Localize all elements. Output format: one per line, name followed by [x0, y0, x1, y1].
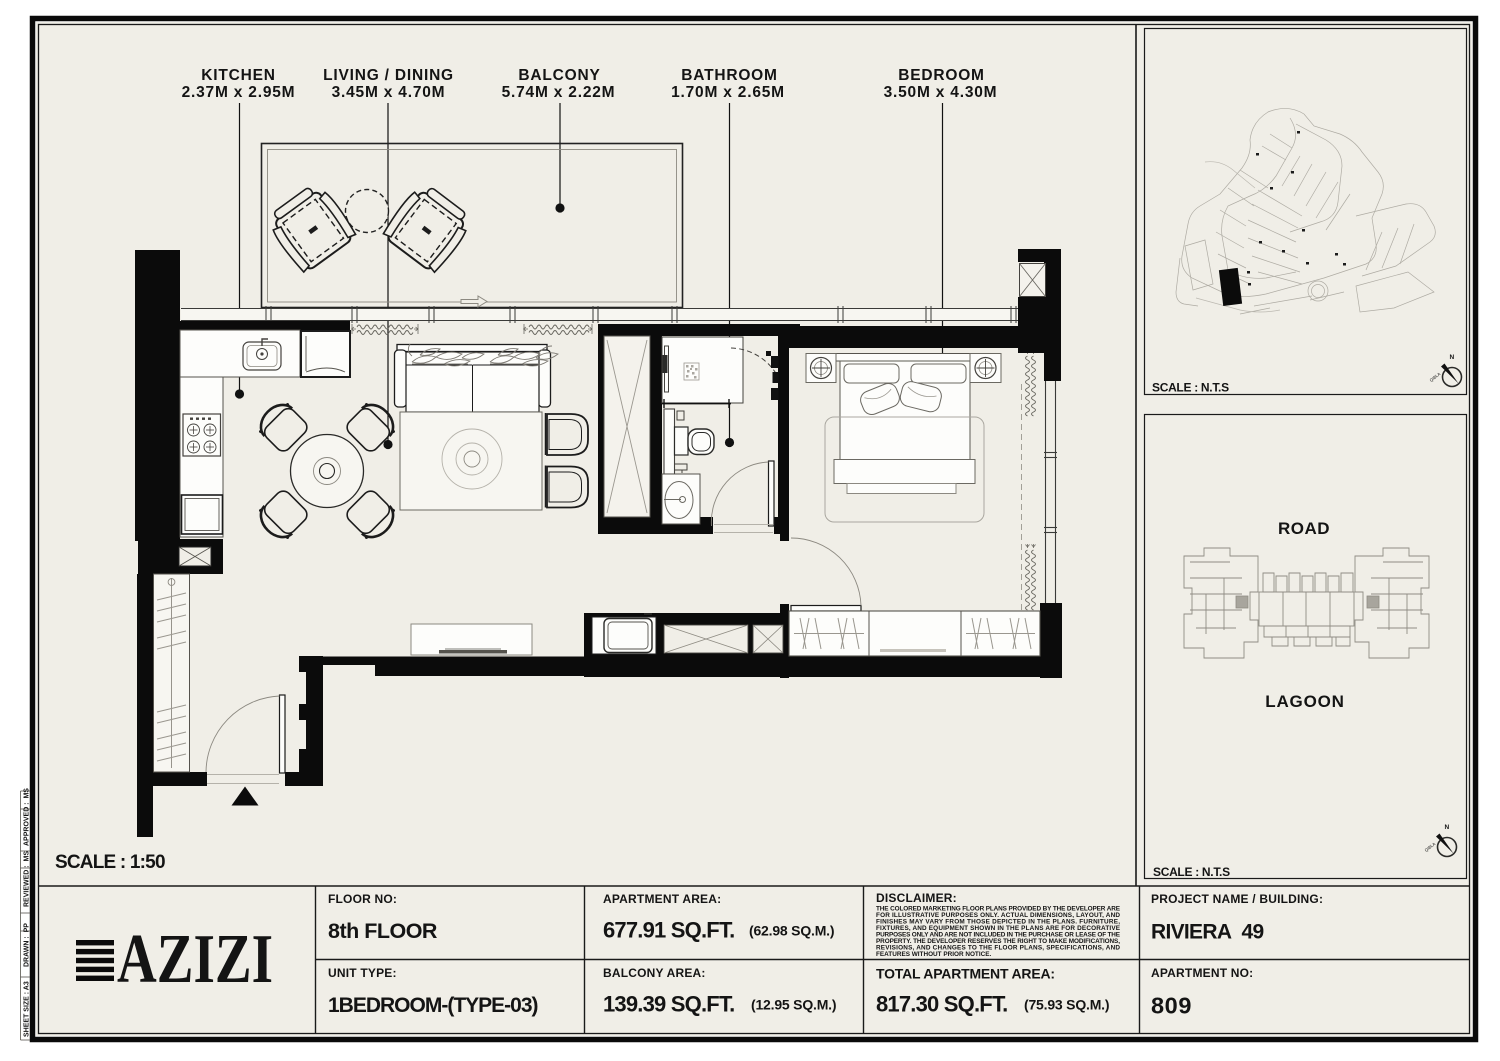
svg-text:TOTAL APARTMENT AREA:: TOTAL APARTMENT AREA: [876, 966, 1055, 982]
svg-text:ROAD: ROAD [1278, 519, 1330, 538]
svg-text:817.30 SQ.FT.: 817.30 SQ.FT. [876, 992, 1007, 1017]
svg-text:SHEET SIZE : A3: SHEET SIZE : A3 [24, 981, 31, 1037]
svg-text:(12.95 SQ.M.): (12.95 SQ.M.) [751, 997, 836, 1013]
svg-text:N: N [1450, 354, 1455, 361]
svg-text:REVIEWED : MS: REVIEWED : MS [24, 851, 31, 907]
svg-text:FLOOR NO:: FLOOR NO: [328, 892, 397, 906]
svg-text:DRAWN : PP: DRAWN : PP [24, 923, 31, 967]
svg-text:SCALE : N.T.S: SCALE : N.T.S [1153, 865, 1230, 879]
svg-text:APARTMENT AREA:: APARTMENT AREA: [603, 892, 721, 906]
svg-text:DISCLAIMER:: DISCLAIMER: [876, 891, 957, 905]
svg-text:5.74M x 2.22M: 5.74M x 2.22M [502, 84, 616, 101]
svg-text:2.37M x 2.95M: 2.37M x 2.95M [182, 84, 296, 101]
svg-text:BALCONY: BALCONY [518, 67, 600, 84]
svg-text:BEDROOM: BEDROOM [898, 67, 985, 84]
svg-text:8th FLOOR: 8th FLOOR [328, 919, 438, 943]
svg-text:SCALE : N.T.S: SCALE : N.T.S [1152, 381, 1229, 395]
svg-text:BALCONY AREA:: BALCONY AREA: [603, 966, 706, 980]
svg-text:(75.93 SQ.M.): (75.93 SQ.M.) [1024, 997, 1109, 1013]
svg-text:139.39 SQ.FT.: 139.39 SQ.FT. [603, 992, 734, 1017]
svg-text:SCALE : 1:50: SCALE : 1:50 [55, 852, 165, 873]
svg-text:PROJECT NAME / BUILDING:: PROJECT NAME / BUILDING: [1151, 892, 1323, 906]
svg-text:3.45M x 4.70M: 3.45M x 4.70M [332, 84, 446, 101]
svg-text:AZIZI: AZIZI [117, 921, 273, 998]
svg-text:677.91 SQ.FT.: 677.91 SQ.FT. [603, 918, 734, 943]
svg-text:KITCHEN: KITCHEN [201, 67, 276, 84]
svg-text:LAGOON: LAGOON [1265, 692, 1344, 711]
svg-text:(62.98 SQ.M.): (62.98 SQ.M.) [749, 923, 834, 939]
svg-text:809: 809 [1151, 993, 1192, 1019]
svg-text:BATHROOM: BATHROOM [681, 67, 778, 84]
svg-text:APARTMENT NO:: APARTMENT NO: [1151, 966, 1253, 980]
svg-text:FEATURES WITHOUT PRIOR NOTICE.: FEATURES WITHOUT PRIOR NOTICE. [876, 951, 991, 958]
svg-text:N: N [1445, 824, 1450, 831]
svg-text:UNIT TYPE:: UNIT TYPE: [328, 966, 397, 980]
svg-text:3.50M x 4.30M: 3.50M x 4.30M [884, 84, 998, 101]
svg-text:RIVIERA 49: RIVIERA 49 [1151, 921, 1264, 944]
svg-text:LIVING / DINING: LIVING / DINING [323, 67, 454, 84]
svg-text:APPROVED : MS: APPROVED : MS [24, 788, 31, 846]
svg-text:1.70M x 2.65M: 1.70M x 2.65M [671, 84, 785, 101]
svg-text:1BEDROOM-(TYPE-03): 1BEDROOM-(TYPE-03) [328, 994, 538, 1017]
